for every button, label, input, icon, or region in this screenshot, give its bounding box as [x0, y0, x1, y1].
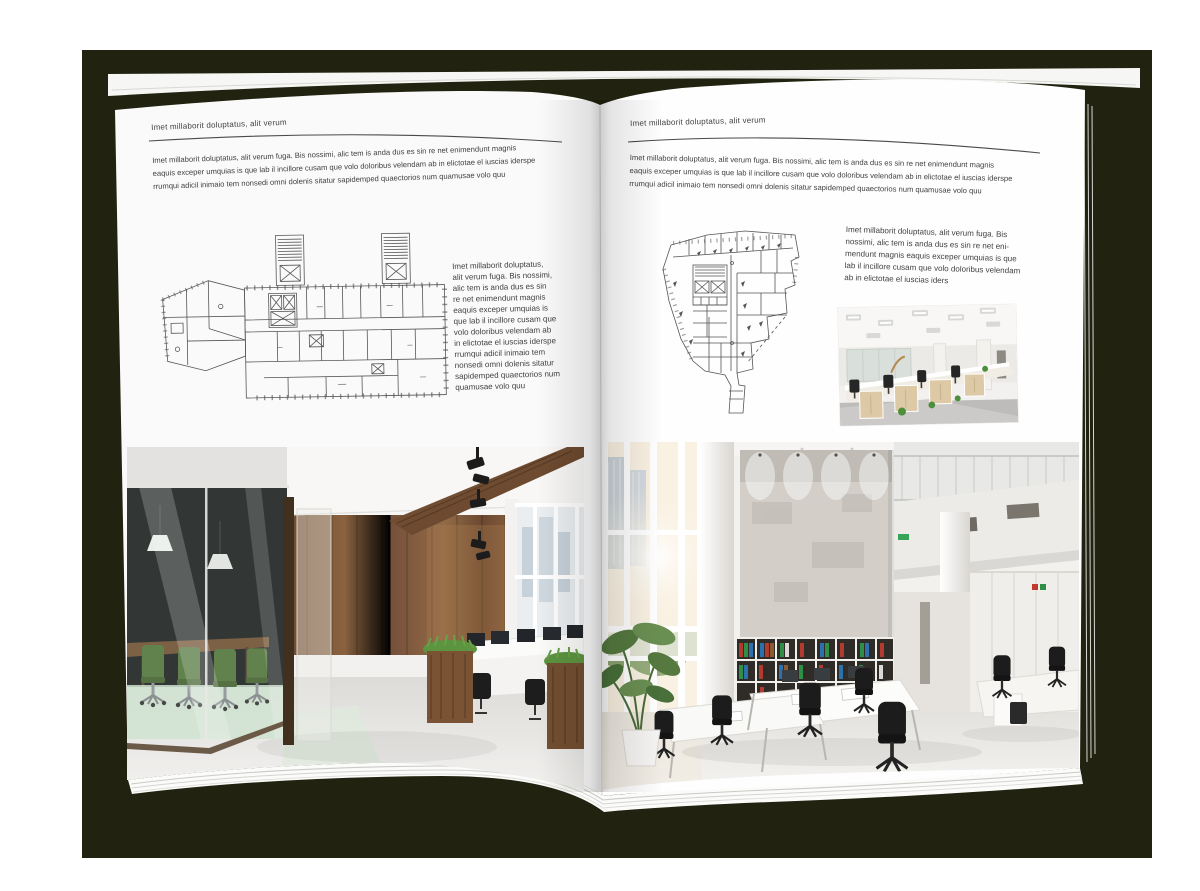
- right-office-photo: [602, 442, 1079, 794]
- left-office-photo: [127, 447, 584, 799]
- left-floor-plan-image: [155, 224, 454, 415]
- right-floor-plan-image: [649, 223, 807, 419]
- right-page-side-text: Imet millaborit doluptatus, alit verum f…: [844, 224, 1046, 290]
- small-office-photo: [838, 304, 1018, 426]
- magazine-mockup-scene: Imet millaborit doluptatus, alit verum I…: [0, 0, 1200, 891]
- left-page-side-text: Imet millaborit doluptatus, alit verum f…: [452, 257, 589, 392]
